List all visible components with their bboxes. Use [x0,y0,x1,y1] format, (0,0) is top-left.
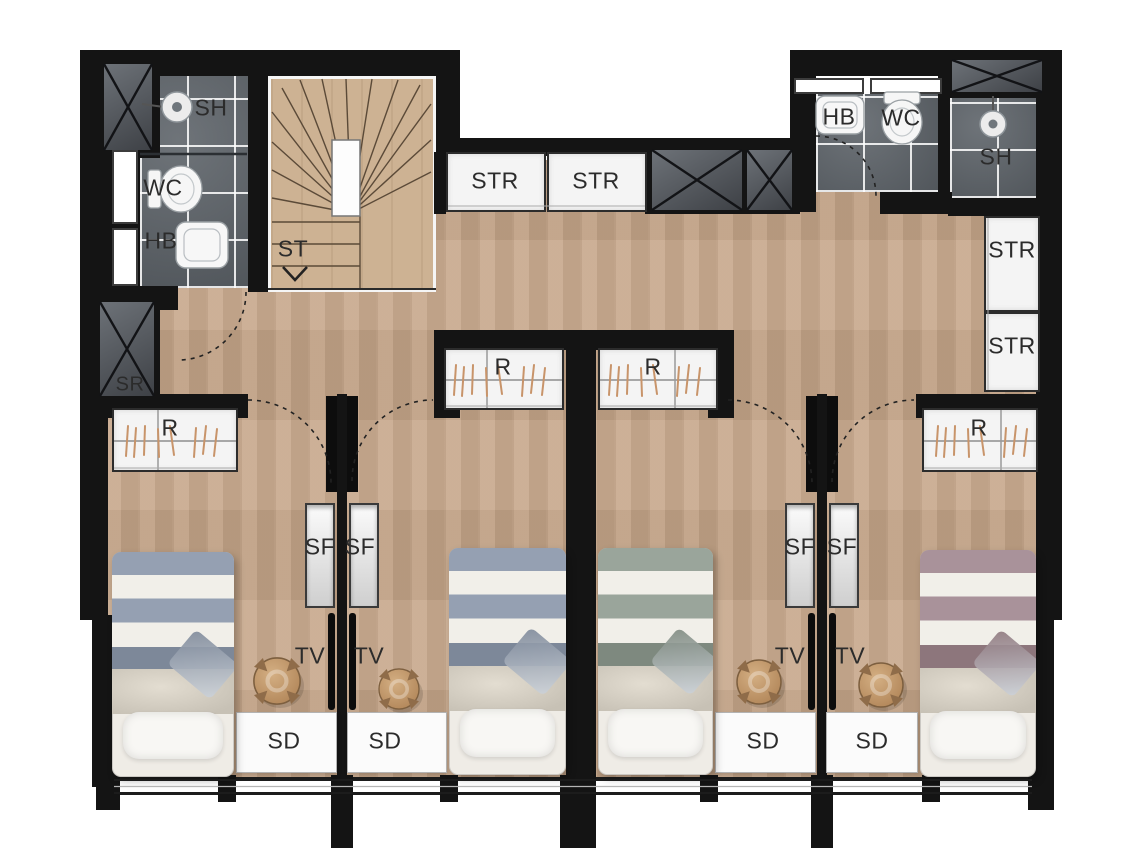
floor-plan: SH WC HB ST STR STR HB WC SH STR STR SR … [0,0,1140,855]
window-pier [922,775,940,802]
label-storage-right-2: STR [988,333,1036,360]
door-leaf [326,396,337,492]
vanity-panel [112,150,138,224]
label-tv-1: TV [295,643,325,670]
label-wardrobe-4: R [970,415,987,442]
label-basin-right: HB [823,104,856,131]
window-pier [218,775,236,802]
window-pier [1028,772,1054,810]
label-shelf-3: SF [785,534,815,561]
label-wc-left: WC [143,175,182,202]
bed-pillow [123,712,223,759]
label-shelf-4: SF [827,534,857,561]
bed-duvet-stripes [920,550,1036,645]
wall [434,152,446,214]
label-shower-left: SH [195,95,228,122]
door-leaf [827,396,838,492]
label-wc-right: WC [881,105,920,132]
label-shelf-1: SF [305,534,335,561]
room-partition [337,394,347,780]
window-pier [96,772,120,810]
duct-shaft [747,150,792,210]
wall [948,198,1040,216]
bed-duvet-stripes [598,548,713,643]
window-pier [700,775,718,802]
bed-pillow [608,709,702,757]
label-wardrobe-3: R [644,354,661,381]
vanity-panel [112,228,138,286]
label-tv-3: TV [775,643,805,670]
wall [248,76,268,292]
bed-pillow [460,709,556,757]
label-basin-left: HB [145,228,178,255]
bed [112,552,234,777]
partition-fin [331,775,353,848]
storage-unit [984,216,1040,312]
label-tv-4: TV [835,643,865,670]
window-pier [440,775,458,802]
bed-duvet-stripes [449,548,566,643]
label-desk-2: SD [369,728,402,755]
door-leaf [806,396,817,492]
label-shelf-2: SF [345,534,375,561]
label-tv-2: TV [354,643,384,670]
duct-shaft [952,60,1042,92]
label-storage-top-1: STR [471,168,519,195]
label-desk-1: SD [268,728,301,755]
label-storage-right-1: STR [988,237,1036,264]
label-wardrobe-1: R [161,415,178,442]
party-wall-fin [560,775,596,848]
bed [598,548,713,775]
bed-duvet-stripes [112,552,234,647]
label-wardrobe-2: R [494,354,511,381]
wall-panel [794,78,864,94]
bed [920,550,1036,777]
partition-fin [811,775,833,848]
door-leaf [347,396,358,492]
party-wall [566,330,596,780]
label-stair: ST [278,236,308,263]
label-desk-3: SD [747,728,780,755]
label-shower-right: SH [980,144,1013,171]
wall [92,615,114,787]
duct-shaft [104,64,152,150]
label-desk-4: SD [856,728,889,755]
label-service-riser: SR [116,374,145,397]
wall-panel [870,78,942,94]
bed [449,548,566,775]
bed-pillow [930,711,1025,759]
label-storage-top-2: STR [572,168,620,195]
duct-shaft [652,150,742,210]
